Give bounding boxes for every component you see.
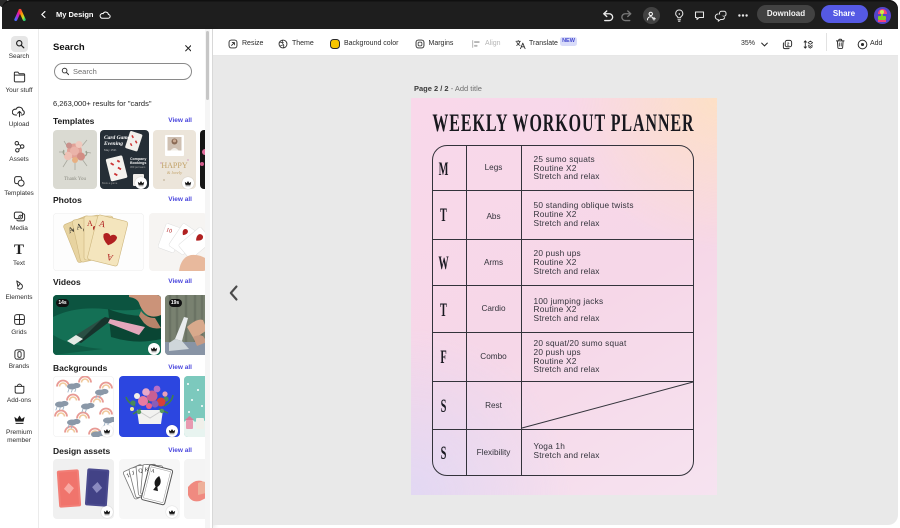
svg-text:Evening: Evening	[103, 141, 123, 147]
svg-text:HAPPY: HAPPY	[161, 161, 187, 170]
svg-text:300 per team: 300 per team	[130, 165, 145, 169]
svg-text:& lovely: & lovely	[166, 170, 181, 175]
svg-text:Bookings: Bookings	[130, 161, 146, 165]
svg-text:Thank You: Thank You	[64, 177, 86, 182]
svg-text:May 15th: May 15th	[104, 148, 117, 152]
svg-text:Book a game: Book a game	[102, 181, 118, 185]
svg-text:A: A	[87, 219, 93, 228]
svg-text:2: 2	[786, 41, 789, 46]
